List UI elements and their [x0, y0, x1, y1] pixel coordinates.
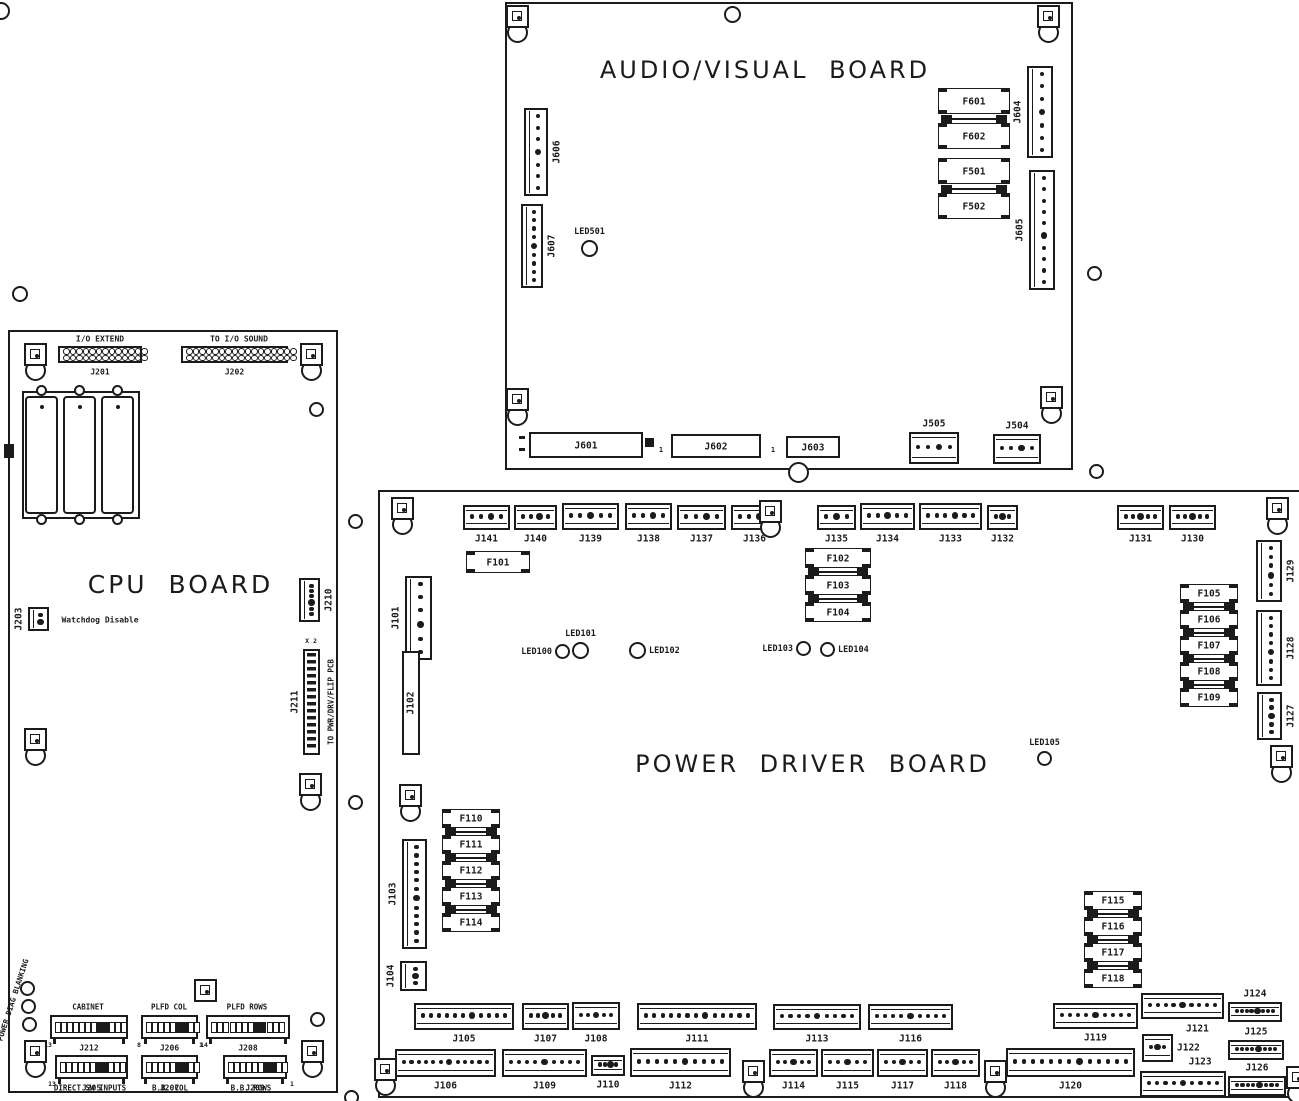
- connector-j128: [1256, 610, 1282, 686]
- mark: [4, 444, 14, 458]
- dip-cell: [267, 1022, 273, 1033]
- connector-j120: [1006, 1048, 1135, 1077]
- pin-dot: [536, 186, 540, 190]
- pin-dot: [1119, 1013, 1123, 1017]
- text-label: 1: [659, 446, 663, 454]
- connector-j124: [1228, 1002, 1282, 1022]
- pin-dot: [1269, 668, 1273, 672]
- pin-dot: [694, 1013, 698, 1017]
- fuse-label: F109: [1198, 693, 1221, 704]
- connector-j133: [919, 503, 982, 530]
- pin-dot: [541, 1059, 548, 1066]
- pin-dot: [1263, 1047, 1267, 1051]
- pin-dot: [1268, 572, 1275, 579]
- fuse-label: F601: [963, 96, 986, 107]
- dip-cell: [236, 1022, 242, 1033]
- pin-dot: [1146, 514, 1150, 518]
- pin-dot: [632, 513, 636, 517]
- dip-cells: [211, 1021, 285, 1033]
- pin-dot: [579, 1013, 583, 1017]
- pin-dot: [917, 1060, 921, 1064]
- led-led105: [1037, 751, 1052, 766]
- pin-dot: [1127, 1013, 1131, 1017]
- screw-center: [310, 784, 314, 788]
- fuse-corner: [806, 576, 814, 580]
- dip-cells: [146, 1021, 193, 1033]
- pin-dot: [1030, 446, 1034, 450]
- pin-dot: [669, 1013, 673, 1017]
- pin-dot: [1198, 1081, 1202, 1085]
- pin-dot: [729, 1013, 733, 1017]
- fuse-clip: [1224, 603, 1235, 611]
- fuse-corner: [1133, 892, 1141, 896]
- pin-dot: [841, 1014, 845, 1018]
- pin-dot: [477, 1060, 481, 1064]
- pin-dot: [916, 445, 920, 449]
- pin-dot: [1156, 1003, 1160, 1007]
- pin-dot: [1148, 1003, 1152, 1007]
- fuse-clip: [445, 828, 456, 836]
- pin-dot: [1039, 109, 1046, 116]
- socket: [101, 396, 134, 514]
- pin-dot: [1076, 1058, 1083, 1065]
- mount-screw-icon: [24, 728, 47, 766]
- mount-hole: [344, 1090, 359, 1101]
- fuse-corner: [467, 552, 475, 556]
- connector-label: J108: [585, 1034, 608, 1045]
- pin-dot: [1172, 1081, 1176, 1085]
- pin-dot: [994, 514, 998, 518]
- pin-dot: [309, 607, 313, 611]
- dip-cell: [273, 1022, 279, 1033]
- pin-dot: [738, 514, 742, 518]
- fuse-corner: [1085, 984, 1093, 988]
- pin-dot: [899, 1059, 906, 1066]
- pin-dot: [747, 514, 751, 518]
- screw-head: [759, 500, 782, 523]
- pin-dots: [1176, 510, 1209, 523]
- dip-foot: [144, 1039, 147, 1044]
- pin: [277, 355, 284, 362]
- pin-dots: [421, 1008, 507, 1023]
- dip-cell: [223, 1022, 229, 1033]
- mount-screw-icon: [399, 784, 422, 822]
- pin-dots: [1235, 1081, 1279, 1089]
- pin-dot: [788, 1014, 792, 1018]
- pin-dot: [413, 967, 417, 971]
- dip-cells: [146, 1061, 193, 1073]
- fuse-corner: [443, 888, 451, 892]
- pin-dot: [424, 1060, 428, 1064]
- text-label: 13: [44, 1041, 52, 1049]
- pin-dot: [431, 1060, 435, 1064]
- dip-cells: [55, 1021, 123, 1033]
- fuse-label: F112: [460, 866, 483, 877]
- pin-dot: [776, 1060, 780, 1064]
- pin-dot: [429, 1013, 433, 1017]
- mark: [645, 438, 654, 447]
- pin-dot: [479, 514, 483, 518]
- connector-label: J139: [579, 534, 602, 545]
- pin-dot: [1149, 1045, 1153, 1049]
- pin-dot: [37, 619, 44, 626]
- pin-dot: [863, 1060, 867, 1064]
- pin-dot: [1171, 1003, 1175, 1007]
- dip-cell: [230, 1022, 236, 1033]
- connector-j110: [591, 1055, 625, 1076]
- pin-dot: [532, 253, 536, 257]
- text-label: 14: [200, 1041, 208, 1049]
- fuse-corner: [491, 928, 499, 932]
- connector-label: J110: [597, 1080, 620, 1091]
- audio-board-title: AUDIO/VISUAL BOARD: [595, 56, 935, 84]
- connector-label: J118: [944, 1081, 967, 1092]
- pin-dot: [1268, 649, 1275, 656]
- screw-center: [312, 1051, 316, 1055]
- pin-dot: [1240, 1047, 1244, 1051]
- pin-dot: [587, 512, 594, 519]
- pin-dot: [948, 445, 952, 449]
- led-label: LED103: [762, 644, 793, 654]
- pin-dot: [850, 1014, 854, 1018]
- fuse-clip-wire: [1093, 965, 1133, 968]
- pin-dot: [1249, 1009, 1253, 1013]
- pin-dot: [1042, 280, 1046, 284]
- pin-dot: [1235, 1083, 1239, 1087]
- pin-dot: [1240, 1083, 1244, 1087]
- pin-dot: [644, 1013, 648, 1017]
- screw-head: [1040, 386, 1063, 409]
- pin-dot: [1256, 1082, 1263, 1089]
- fuse-clip: [445, 880, 456, 888]
- pin-dot: [532, 261, 536, 265]
- screw-head: [742, 1060, 765, 1083]
- fuse-clip: [1224, 655, 1235, 663]
- pin-dot: [1269, 641, 1273, 645]
- fuse-corner: [1181, 637, 1189, 641]
- pin-dot: [488, 513, 495, 520]
- pin-dot: [417, 621, 424, 628]
- screw-head: [24, 728, 47, 751]
- pin-dot: [602, 1013, 606, 1017]
- mount-hole: [1087, 266, 1102, 281]
- fuse-corner: [1133, 970, 1141, 974]
- fuse-clip: [486, 880, 497, 888]
- connector-label: J607: [547, 235, 558, 258]
- pin-dot: [1261, 1009, 1265, 1013]
- pin-dots: [409, 967, 422, 985]
- pin-dot: [614, 1062, 618, 1066]
- mount-screw-icon: [1040, 386, 1063, 424]
- connector-label: J604: [1013, 101, 1024, 124]
- pin-dot: [402, 1060, 406, 1064]
- connector-j121: [1141, 993, 1224, 1019]
- pin-dot: [833, 1014, 837, 1018]
- pin-dot: [1040, 1059, 1044, 1063]
- pin-dot: [1042, 187, 1046, 191]
- pin-dot: [825, 1014, 829, 1018]
- pin-dots: [1060, 1008, 1131, 1022]
- connector-label: J211: [290, 691, 301, 714]
- screw-center: [410, 795, 414, 799]
- pin-dot: [593, 1012, 600, 1019]
- connector-j504: [993, 434, 1041, 464]
- fuse-label: F108: [1198, 667, 1221, 678]
- fuse-label: F103: [827, 580, 850, 591]
- connector-j108: [572, 1002, 620, 1030]
- fuse-corner: [862, 618, 870, 622]
- text-label: TO PWR/DRV/FLIP PCB: [327, 659, 336, 745]
- mount-screw-icon: [194, 979, 217, 1002]
- pin: [63, 355, 70, 362]
- fuse-corner: [1001, 159, 1009, 163]
- mark: [519, 448, 525, 451]
- pin-dot: [1042, 257, 1046, 261]
- fuse-label: F114: [460, 918, 483, 929]
- pin-dot: [1058, 1059, 1062, 1063]
- pin-dot: [907, 1013, 914, 1020]
- pin-dot: [904, 513, 908, 517]
- pin-dot: [1269, 659, 1273, 663]
- fuse-clip: [808, 595, 819, 603]
- fuse-corner: [1001, 194, 1009, 198]
- fuse-label: F501: [963, 166, 986, 177]
- fuse-corner: [443, 914, 451, 918]
- connector-label: J102: [406, 692, 417, 715]
- pin-dot: [1268, 713, 1275, 720]
- fuse-corner: [491, 862, 499, 866]
- connector-j141: [463, 505, 510, 530]
- pin-dots: [411, 845, 422, 943]
- text-label: CABINET: [72, 1003, 104, 1012]
- pin-dot: [1269, 546, 1273, 550]
- pin-dot: [525, 1060, 529, 1064]
- screw-center: [205, 990, 209, 994]
- pin-dot: [1269, 676, 1273, 680]
- pin-dot: [1269, 555, 1273, 559]
- mount-screw-icon: [1270, 745, 1293, 783]
- fuse-corner: [1001, 145, 1009, 149]
- pin-dot: [1111, 1013, 1115, 1017]
- pin-dot: [1235, 1047, 1239, 1051]
- connector-label: J119: [1084, 1033, 1107, 1044]
- screw-head: [374, 1058, 397, 1081]
- pin-dot: [1246, 1083, 1250, 1087]
- fuse-clip: [941, 185, 952, 193]
- pin-dot: [532, 270, 536, 274]
- pin-dot: [1183, 514, 1187, 518]
- pin-dot: [308, 599, 315, 606]
- fuse-clip: [996, 185, 1007, 193]
- pin-dot: [1189, 1003, 1193, 1007]
- dip-cell: [211, 1022, 217, 1033]
- pin-dot: [899, 1014, 903, 1018]
- fuse-clip-wire: [1189, 632, 1229, 635]
- connector-j205: [55, 1055, 128, 1079]
- connector-label: J206: [160, 1044, 179, 1053]
- mount-hole: [0, 2, 10, 20]
- pin-dots: [37, 613, 44, 625]
- connector-label: J210: [324, 589, 335, 612]
- pin-dots: [828, 1054, 867, 1070]
- screw-head: [1266, 497, 1289, 520]
- fuse-corner: [1133, 984, 1141, 988]
- connector-label: J124: [1244, 989, 1267, 1000]
- fuse-clip-wire: [947, 188, 1001, 191]
- connector-label: J131: [1129, 534, 1152, 545]
- mount-screw-icon: [759, 500, 782, 538]
- pin-dots: [533, 114, 543, 190]
- fuse-corner: [1229, 585, 1237, 589]
- pin-dots: [1265, 546, 1277, 596]
- pin-dot: [661, 1013, 665, 1017]
- dip-cell: [121, 1022, 127, 1033]
- fuse-clip-wire: [1189, 658, 1229, 661]
- pin-dots: [402, 1054, 489, 1070]
- screw-center: [1281, 756, 1285, 760]
- text-label: X 2: [305, 637, 317, 645]
- fuse-corner: [939, 180, 947, 184]
- connector-j112: [630, 1048, 731, 1077]
- pin-dot: [1040, 97, 1044, 101]
- pin-dot: [703, 513, 710, 520]
- mount-screw-icon: [1037, 5, 1060, 43]
- pin-dot: [1041, 232, 1048, 239]
- pin-dot: [529, 514, 533, 518]
- pin-dot: [1164, 1003, 1168, 1007]
- connector-j104: [400, 961, 427, 991]
- screw-center: [402, 508, 406, 512]
- pin-dot: [542, 1012, 549, 1019]
- led-label: LED101: [565, 629, 596, 639]
- fuse-label: F116: [1102, 922, 1125, 933]
- fuse-corner: [1181, 611, 1189, 615]
- socket-tab: [112, 385, 123, 396]
- fuse-label: F105: [1198, 589, 1221, 600]
- connector-j127: [1257, 692, 1282, 740]
- pin-dots: [1266, 698, 1277, 734]
- pin-dot: [487, 1013, 491, 1017]
- pin-dot: [1180, 1080, 1187, 1087]
- pin-dot: [1235, 1009, 1239, 1013]
- fuse-corner: [1181, 703, 1189, 707]
- connector-label: J135: [825, 534, 848, 545]
- pcb-layout-diagram: AUDIO/VISUAL BOARD CPU BOARD POWER DRIVE…: [0, 0, 1299, 1101]
- pin-dot: [1137, 513, 1144, 520]
- connector-label: J504: [1006, 421, 1029, 432]
- pin-dot: [569, 513, 573, 517]
- pin-dot: [673, 1059, 677, 1063]
- pin-dot: [453, 1013, 457, 1017]
- fuse-clip-wire: [1093, 913, 1133, 916]
- mount-screw-icon: [742, 1060, 765, 1098]
- pin-dot: [876, 513, 880, 517]
- fuse-clip-wire: [1189, 684, 1229, 687]
- fuse-clip-wire: [947, 118, 1001, 121]
- pin-dot: [1013, 1059, 1017, 1063]
- pin-dot: [844, 1059, 851, 1066]
- connector-j116: [868, 1004, 953, 1030]
- pin-dot: [641, 513, 645, 517]
- connector-label: J141: [475, 534, 498, 545]
- pin-dot: [309, 589, 313, 593]
- fuse-label: F104: [827, 607, 850, 618]
- connector-j130: [1169, 505, 1216, 530]
- connector-label: J134: [876, 534, 899, 545]
- fuse-corner: [443, 928, 451, 932]
- pin-dot: [664, 1059, 668, 1063]
- pin-dot: [918, 1014, 922, 1018]
- fuse-clip: [1087, 910, 1098, 918]
- mount-screw-icon: [984, 1060, 1007, 1098]
- led-label: LED102: [649, 646, 680, 656]
- pin-dot: [479, 1013, 483, 1017]
- connector-label: J125: [1245, 1027, 1268, 1038]
- dip-foot: [281, 1079, 284, 1084]
- pin-dot: [934, 1014, 938, 1018]
- mount-hole: [309, 402, 324, 417]
- pin: [290, 348, 297, 355]
- pin-dot: [495, 1013, 499, 1017]
- fuse-corner: [1229, 703, 1237, 707]
- pin-dots: [776, 1054, 811, 1070]
- pin-dots: [1000, 439, 1034, 457]
- connector-label: J101: [391, 607, 402, 630]
- fuse-corner: [443, 810, 451, 814]
- screw-center: [35, 739, 39, 743]
- pin-dot: [867, 513, 871, 517]
- cpu-board-title: CPU BOARD: [58, 570, 303, 599]
- fuse-corner: [939, 89, 947, 93]
- pin-dot: [1163, 1081, 1167, 1085]
- pin-row: [186, 355, 283, 362]
- connector-j101: [405, 576, 432, 660]
- pin-dot: [952, 1059, 959, 1066]
- fuse-corner: [1001, 215, 1009, 219]
- connector-j122: [1142, 1034, 1173, 1062]
- pin-dot: [1269, 632, 1273, 636]
- connector-label: J605: [1015, 219, 1026, 242]
- pin-dot: [414, 922, 418, 926]
- pin-dots: [644, 1008, 750, 1023]
- pin-dot: [1088, 1059, 1092, 1063]
- pin-dot: [780, 1014, 784, 1018]
- pin-dot: [1154, 1044, 1161, 1051]
- pin-dot: [439, 1060, 443, 1064]
- pin-dot: [1269, 1083, 1273, 1087]
- screw-center: [311, 354, 315, 358]
- text-label: DIRECT SW INPUTS: [54, 1084, 126, 1093]
- mount-hole: [1089, 464, 1104, 479]
- pin-dot: [461, 1013, 465, 1017]
- pin: [290, 355, 297, 362]
- screw-head: [1286, 1066, 1299, 1089]
- pin-dots: [1124, 510, 1157, 523]
- text-label: 1: [290, 1080, 294, 1088]
- fuse-label: F102: [827, 553, 850, 564]
- connector-label: J112: [669, 1081, 692, 1092]
- connector-j212: [50, 1015, 128, 1039]
- pin-dot: [646, 1059, 650, 1063]
- pin-dot: [884, 512, 891, 519]
- pin-dot: [470, 1060, 474, 1064]
- pin-dot: [909, 1060, 913, 1064]
- connector-label: J105: [453, 1034, 476, 1045]
- fuse-clip-wire: [814, 598, 862, 601]
- pin-dot: [1068, 1013, 1072, 1017]
- pin-dot: [1245, 1009, 1249, 1013]
- pin-dots: [632, 508, 665, 523]
